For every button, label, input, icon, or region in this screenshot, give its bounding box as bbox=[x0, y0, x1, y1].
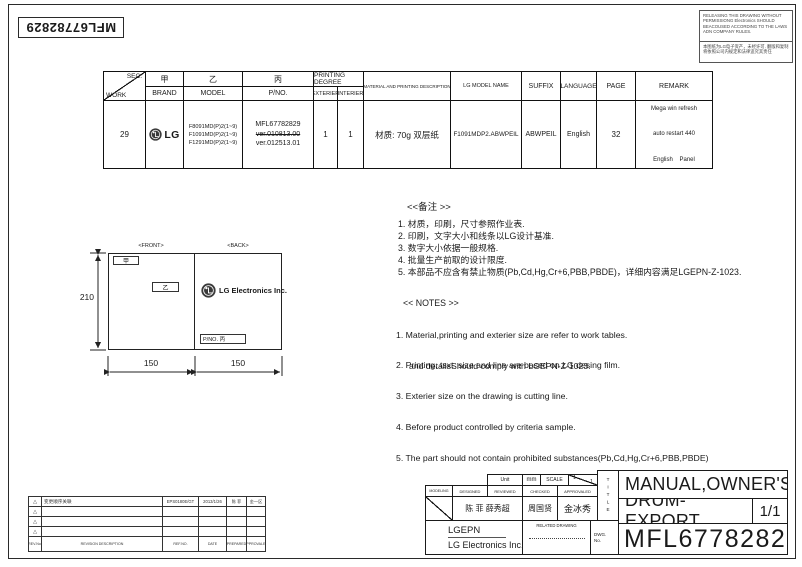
rotated-part-number: MFL67782829 bbox=[26, 20, 116, 35]
header-page: PAGE bbox=[597, 72, 636, 101]
related-drawing-dotted-line bbox=[529, 538, 585, 539]
header-printing-degree: PRINTING DEGREE bbox=[314, 72, 364, 87]
cell-work: 29 bbox=[104, 101, 146, 169]
release-notice-box: RELEASING THIS DRAWING WITHOUT PERMISSIO… bbox=[699, 10, 793, 63]
title-vertical-cell: TITLE bbox=[597, 470, 619, 521]
revision-row-2-marker: △ bbox=[29, 507, 42, 517]
header-bing: 丙 bbox=[243, 72, 314, 87]
drawing-number-cell: MFL67782829 bbox=[618, 523, 788, 555]
cell-brand: LG bbox=[146, 101, 184, 169]
pno-number: MFL67782829 bbox=[255, 120, 300, 130]
cell-lg-model-name: F1091MDP2.ABWPEIL bbox=[451, 101, 522, 169]
notes-en-item-4: 4. Before product controlled by criteria… bbox=[396, 422, 709, 432]
revision-header-rev-no: REV.No. bbox=[29, 537, 42, 552]
cell-exterier: 1 bbox=[314, 101, 338, 169]
release-notice-english: RELEASING THIS DRAWING WITHOUT PERMISSIO… bbox=[700, 11, 792, 42]
model-1: F8091MD(P)2(1~9) bbox=[189, 123, 237, 131]
revision-row-4-date bbox=[199, 527, 227, 537]
revision-row-3-date bbox=[199, 517, 227, 527]
company-full-name: LG Electronics Inc. bbox=[448, 540, 523, 550]
company-short-name: LGEPN bbox=[448, 525, 506, 538]
work-sec-header-cell: SEC. WORK bbox=[104, 72, 146, 101]
remarks-cn-item-1: 1. 材质，印刷，尺寸参照作业表. bbox=[398, 219, 741, 231]
notes-en-item-5: 5. The part should not contain prohibite… bbox=[396, 453, 709, 463]
lg-circle-mark-icon bbox=[149, 128, 162, 141]
dimension-lines bbox=[70, 248, 290, 380]
revision-row-2-date bbox=[199, 507, 227, 517]
cell-remark: Mega win refresh auto restart 440 Englis… bbox=[636, 101, 713, 169]
revision-row-3-ref-no bbox=[163, 517, 199, 527]
sec-label: SEC. bbox=[127, 73, 142, 80]
revision-row-2-approvaled bbox=[247, 507, 266, 517]
notes-en-item-5-continuation: and detailsShould comply with LGEPN-Z-10… bbox=[396, 361, 591, 371]
revision-row-2-ref-no bbox=[163, 507, 199, 517]
revision-header-date: DATE bbox=[199, 537, 227, 552]
revision-row-4-description bbox=[42, 527, 163, 537]
checked-signature: 周国贤 bbox=[522, 496, 558, 521]
remark-line-1: Mega win refresh bbox=[651, 105, 697, 114]
notes-en-item-3: 3. Exterier size on the drawing is cutti… bbox=[396, 391, 709, 401]
revision-row-4-approvaled bbox=[247, 527, 266, 537]
revision-row-1-ref-no: EPS0180E/GT bbox=[163, 497, 199, 507]
header-jia: 甲 bbox=[146, 72, 184, 87]
dwg-no-label: No. bbox=[594, 538, 601, 544]
release-notice-chinese: 本图纸为LG电子资产，未经许可. 翻版和复制将依照公司内规定和法律追究其责任 bbox=[700, 42, 792, 64]
header-material: MATERIAL AND PRINTING DESCRIPTION bbox=[364, 72, 451, 101]
title-line-2: DRUM-EXPORT bbox=[618, 498, 753, 524]
revision-row-2-prepared bbox=[227, 507, 247, 517]
cell-language: English bbox=[561, 101, 597, 169]
remarks-cn-list: 1. 材质，印刷，尺寸参照作业表. 2. 印刷，文字大小和线条以LG设计基准. … bbox=[398, 219, 741, 279]
title-vertical-text: TITLE bbox=[606, 477, 611, 515]
pno-old-version: ver.010813.00 bbox=[255, 130, 300, 140]
lg-brand-logo: LG bbox=[149, 128, 179, 141]
revision-header-prepared: PREPARED bbox=[227, 537, 247, 552]
revision-row-1-approvaled: 金一区 bbox=[247, 497, 266, 507]
header-interier: INTERIER bbox=[338, 87, 364, 101]
work-label: WORK bbox=[106, 92, 126, 99]
remarks-cn-title: <<备注 >> bbox=[407, 199, 451, 213]
notes-en-list: 1. Material,printing and exterier size a… bbox=[396, 309, 709, 484]
revision-header-description: REVISION DESCRIPTION bbox=[42, 537, 163, 552]
revision-header-approvaled: APPROVALED bbox=[247, 537, 266, 552]
lg-brand-text: LG bbox=[164, 129, 179, 141]
dim-width-back-150: 150 bbox=[228, 358, 248, 368]
designed-signature: 陈 菲 薛秀超 bbox=[452, 496, 523, 521]
cell-interier: 1 bbox=[338, 101, 364, 169]
remark-line-3: English Panel bbox=[651, 156, 697, 165]
revision-row-1-marker: △ bbox=[29, 497, 42, 507]
header-yi: 乙 bbox=[184, 72, 243, 87]
revision-row-3-marker: △ bbox=[29, 517, 42, 527]
revision-row-3-approvaled bbox=[247, 517, 266, 527]
header-language: LANGUAGE bbox=[561, 72, 597, 101]
header-lg-model-name: LG MODEL NAME bbox=[451, 72, 522, 101]
revision-row-3-description bbox=[42, 517, 163, 527]
modeling-signature-slash bbox=[425, 496, 453, 521]
related-drawing-cell: RELATED DRAWING bbox=[522, 520, 591, 555]
dwg-no-cell: DWG. No. bbox=[590, 520, 619, 555]
cell-pno: MFL67782829 ver.010813.00 ver.012513.01 bbox=[243, 101, 314, 169]
revision-row-4-prepared bbox=[227, 527, 247, 537]
revision-header-ref-no: REF.NO. bbox=[163, 537, 199, 552]
company-cell: LGEPN LG Electronics Inc. bbox=[425, 520, 523, 555]
revision-row-3-prepared bbox=[227, 517, 247, 527]
remarks-cn-item-5: 5. 本部品不应含有禁止物质(Pb,Cd,Hg,Cr+6,PBB,PBDE)，详… bbox=[398, 267, 741, 279]
model-3: F1291MD(P)2(1~9) bbox=[189, 139, 237, 147]
remarks-cn-item-2: 2. 印刷，文字大小和线条以LG设计基准. bbox=[398, 231, 741, 243]
dim-width-front-150: 150 bbox=[141, 358, 161, 368]
remarks-cn-item-4: 4. 批量生产前取的设计限度. bbox=[398, 255, 741, 267]
pno-version: ver.012513.01 bbox=[255, 139, 300, 149]
sheet-number-cell: 1/1 bbox=[752, 498, 788, 524]
dim-height-210: 210 bbox=[74, 292, 94, 302]
notes-en-item-1: 1. Material,printing and exterier size a… bbox=[396, 330, 709, 340]
remarks-cn-item-3: 3. 数字大小依据一般规格. bbox=[398, 243, 741, 255]
related-drawing-label: RELATED DRAWING bbox=[536, 523, 576, 528]
header-exterier: EXTERIER bbox=[314, 87, 338, 101]
cell-models: F8091MD(P)2(1~9) F1091MD(P)2(1~9) F1291M… bbox=[184, 101, 243, 169]
spec-sheet-page: MFL67782829 RELEASING THIS DRAWING WITHO… bbox=[0, 0, 802, 567]
header-remark: REMARK bbox=[636, 72, 713, 101]
notes-en-title: << NOTES >> bbox=[403, 298, 459, 308]
revision-row-2-description bbox=[42, 507, 163, 517]
revision-row-4-ref-no bbox=[163, 527, 199, 537]
rotated-part-number-box: MFL67782829 bbox=[18, 17, 124, 38]
header-brand: BRAND bbox=[146, 87, 184, 101]
cell-suffix: ABWPEIL bbox=[522, 101, 561, 169]
approvaled-signature: 金冰秀 bbox=[557, 496, 598, 521]
model-2: F1091MD(P)2(1~9) bbox=[189, 131, 237, 139]
remark-line-2: auto restart 440 bbox=[651, 130, 697, 139]
title-line-1: MANUAL,OWNER'S bbox=[618, 470, 788, 499]
cell-page: 32 bbox=[597, 101, 636, 169]
revision-row-1-prepared: 陈 菲 bbox=[227, 497, 247, 507]
cell-material: 材质: 70g 双层纸 bbox=[364, 101, 451, 169]
scale-numerator: 1 bbox=[573, 475, 576, 481]
revision-row-1-description: 变更顺序关联 bbox=[42, 497, 163, 507]
work-table: SEC. WORK 甲 乙 丙 PRINTING DEGREE MATERIAL… bbox=[103, 71, 713, 169]
revision-table: △ 变更顺序关联 EPS0180E/GT 2013/1/26 陈 菲 金一区 △… bbox=[28, 496, 266, 552]
revision-row-1-date: 2013/1/26 bbox=[199, 497, 227, 507]
header-pno: P/NO. bbox=[243, 87, 314, 101]
header-suffix: SUFFIX bbox=[522, 72, 561, 101]
revision-row-4-marker: △ bbox=[29, 527, 42, 537]
header-model: MODEL bbox=[184, 87, 243, 101]
